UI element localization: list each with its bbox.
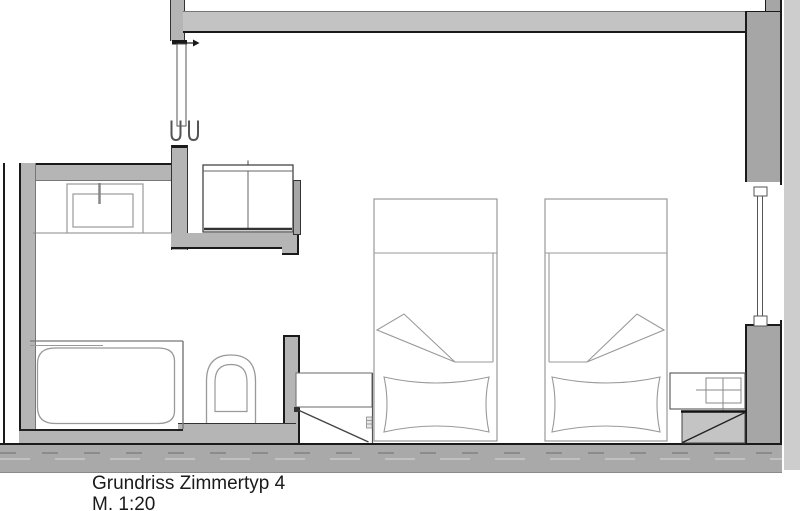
right-wall-edge-line-upper: [780, 0, 782, 185]
toilet: [207, 355, 256, 423]
bed-frame: [545, 199, 667, 441]
exterior-wall-top: [183, 11, 745, 33]
wardrobe-side-panel: [293, 180, 301, 235]
wardrobe: [203, 161, 293, 233]
vanity-sink: [33, 183, 172, 233]
bathroom-left-wall: [19, 163, 36, 445]
wardrobe-base-step: [282, 233, 299, 255]
bed-1: [374, 199, 497, 441]
wardrobe-base-wall: [171, 233, 282, 249]
bathroom-door-swing-line: [297, 410, 369, 443]
blanket-fold-triangle: [587, 314, 664, 362]
nightstand: [670, 373, 745, 411]
plan-title: Grundriss Zimmertyp 4: [92, 472, 285, 495]
plan-scale: M. 1:20: [92, 493, 155, 511]
bathtub-outline: [38, 348, 175, 424]
entrance-door-leaf: [177, 44, 186, 126]
pillow: [552, 377, 660, 432]
entrance-door: [172, 40, 200, 141]
facade-strip-right: [784, 0, 800, 470]
toilet-inner: [215, 365, 247, 412]
wardrobe-outline: [203, 165, 293, 232]
left-facade-line: [3, 163, 5, 444]
right-exterior-wall-upper: [745, 11, 782, 184]
console-bench: [294, 373, 373, 443]
toilet-back-wall: [178, 423, 296, 444]
phone-icon: [696, 378, 741, 411]
blanket-fold-triangle: [377, 314, 455, 362]
floor-plan: Grundriss Zimmertyp 4 M. 1:20: [0, 0, 800, 511]
shaft-fill: [682, 412, 745, 443]
pillow: [384, 377, 489, 432]
bed-2: [545, 199, 667, 441]
bathroom-top-wall: [19, 163, 178, 181]
bed-frame: [374, 199, 497, 441]
sink-basin: [73, 194, 133, 227]
exterior-wall-bottom: [0, 443, 782, 473]
vanity-outline: [67, 184, 143, 233]
service-shaft: [681, 412, 746, 444]
bathtub: [30, 341, 183, 429]
door-handle-icon: [172, 121, 181, 141]
window-reveal: [745, 182, 780, 324]
shaft-diagonal: [683, 413, 746, 443]
door-handle-icon: [189, 121, 198, 141]
toilet-outer: [207, 355, 256, 423]
console-outline: [296, 373, 372, 407]
nightstand-outline: [670, 373, 745, 409]
door-jamb: [367, 417, 373, 428]
